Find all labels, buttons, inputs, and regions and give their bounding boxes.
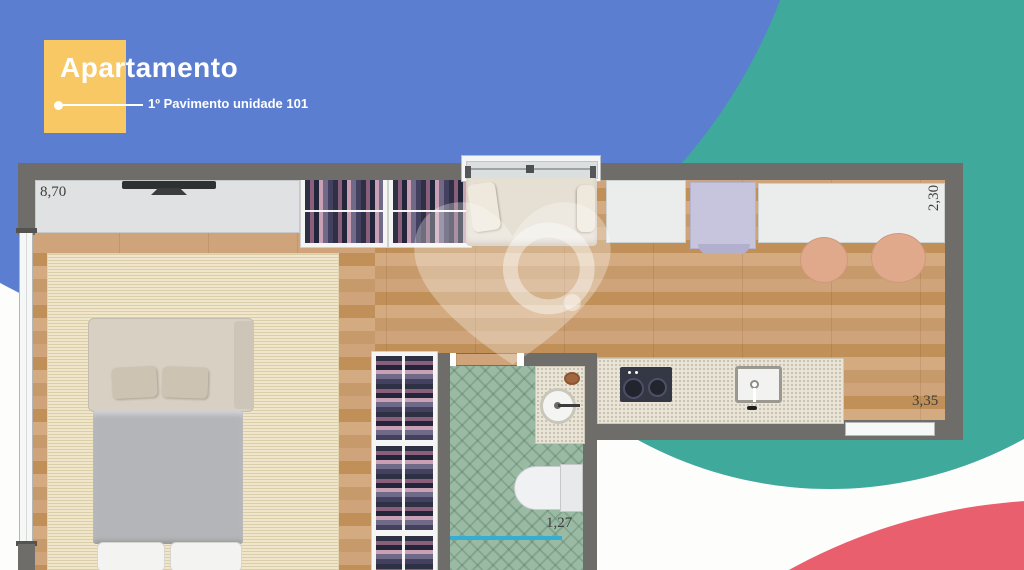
dimension-kitchen-length: 3,35: [912, 393, 938, 410]
wardrobe-clothes: [305, 180, 383, 243]
burner: [623, 378, 644, 399]
dimension-total-width: 8,70: [40, 184, 66, 201]
dimension-bathroom-width: 1,27: [546, 515, 572, 532]
bedroom-sofa-arm: [234, 321, 254, 409]
wall-left-top: [18, 163, 35, 235]
floor-plan: 8,70 2,30 3,35 1,27: [0, 0, 1024, 570]
balcony-door-post: [590, 166, 596, 178]
bed-pillow: [97, 542, 165, 570]
shower-screen: [450, 536, 562, 540]
kitchen-faucet-stem: [753, 388, 756, 402]
window-bottom: [845, 422, 935, 436]
bed-pillow: [170, 542, 242, 570]
wardrobe-clothes: [376, 446, 433, 530]
soap-dish: [564, 372, 580, 385]
stool: [800, 237, 848, 283]
burner: [648, 378, 667, 397]
heart-logo-icon: [405, 198, 620, 373]
balcony-door-post: [465, 166, 471, 178]
sink-drain-mark: [747, 406, 757, 410]
balcony-door-handle: [526, 165, 534, 173]
wardrobe-clothes: [376, 536, 433, 570]
sofa-cushion: [111, 366, 158, 399]
desk-chair: [698, 244, 750, 254]
wardrobe: [301, 176, 387, 247]
tv: [122, 181, 216, 189]
wall-bathroom-right: [583, 358, 597, 570]
wardrobe-column: [372, 352, 437, 570]
bathroom-faucet-handle: [558, 404, 580, 407]
cooktop-knob: [628, 371, 631, 374]
window-tick: [16, 228, 37, 233]
bed-duvet: [93, 410, 243, 544]
cooktop-knob: [635, 371, 638, 374]
desk: [690, 182, 756, 249]
wall-wardrobe-divider: [437, 353, 450, 570]
brochure-page: Apartamento 1º Pavimento unidade 101: [0, 0, 1024, 570]
wall-left-bottom: [18, 544, 35, 570]
window-glass-line: [26, 233, 27, 545]
window-left: [19, 232, 33, 544]
sofa-cushion: [161, 366, 208, 399]
dimension-depth-right: 2,30: [912, 176, 956, 220]
toilet-tank: [560, 464, 583, 512]
stool: [871, 233, 926, 283]
bedroom-sofa: [88, 318, 254, 412]
